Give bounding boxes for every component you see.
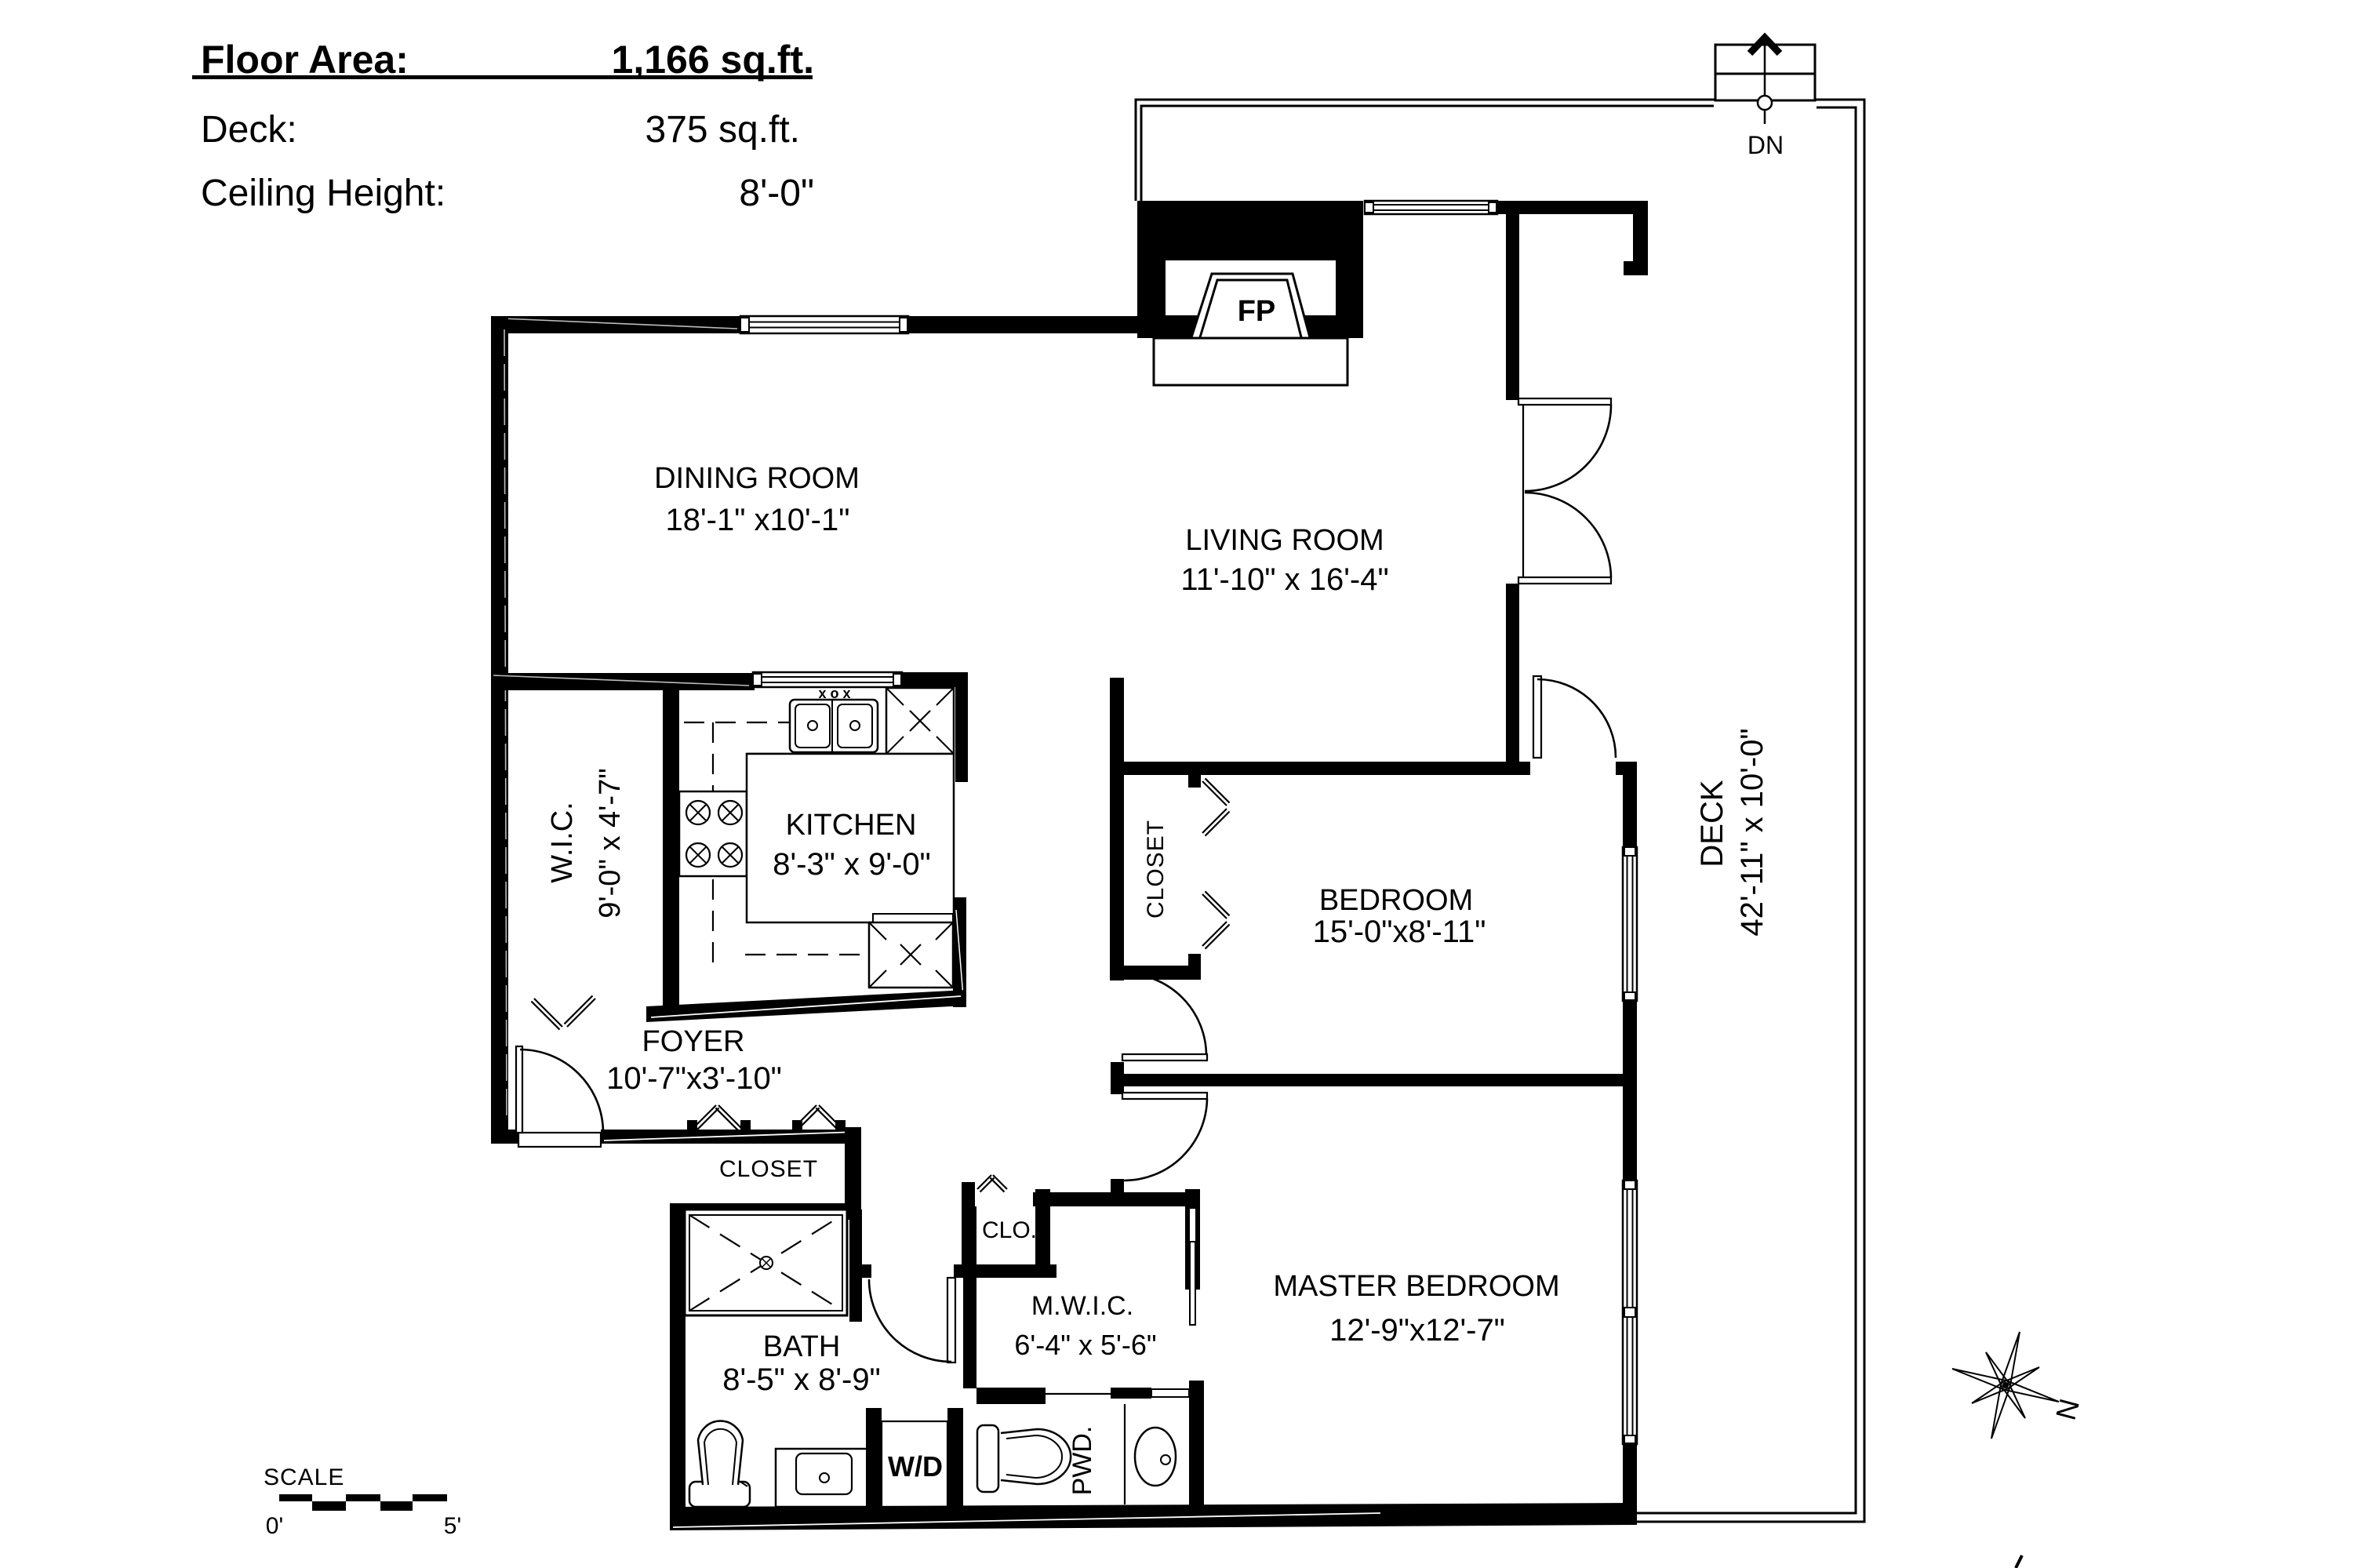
svg-text:9'-0" x 4'-7": 9'-0" x 4'-7" [594,768,627,918]
svg-text:SCALE: SCALE [264,1464,344,1490]
svg-text:W.I.C.: W.I.C. [546,802,579,882]
svg-text:CLOSET: CLOSET [1143,820,1169,919]
svg-text:CLO.: CLO. [982,1217,1037,1243]
svg-text:Floor Area:: Floor Area: [201,38,409,82]
svg-text:42'-11" x 10'-0": 42'-11" x 10'-0" [1735,728,1769,936]
svg-text:375 sq.ft.: 375 sq.ft. [646,109,800,151]
svg-text:DECK: DECK [1695,780,1729,867]
svg-text:18'-1" x10'-1": 18'-1" x10'-1" [666,503,850,537]
svg-text:BATH: BATH [763,1330,841,1363]
svg-text:12'-9"x12'-7": 12'-9"x12'-7" [1329,1313,1505,1348]
svg-text:15'-0"x8'-11": 15'-0"x8'-11" [1313,915,1486,949]
svg-text:5': 5' [444,1513,461,1539]
svg-text:0': 0' [266,1513,283,1539]
svg-text:CLOSET: CLOSET [719,1156,818,1182]
svg-text:KITCHEN: KITCHEN [786,809,917,842]
svg-text:LIVING ROOM: LIVING ROOM [1185,524,1384,557]
svg-text:8'-5" x 8'-9": 8'-5" x 8'-9" [722,1362,881,1397]
svg-text:W/D: W/D [888,1450,943,1483]
svg-text:6'-4" x 5'-6": 6'-4" x 5'-6" [1014,1329,1156,1361]
svg-text:FP: FP [1238,295,1276,328]
svg-text:DN: DN [1747,131,1784,159]
svg-text:M.W.I.C.: M.W.I.C. [1031,1291,1133,1321]
svg-text:MASTER BEDROOM: MASTER BEDROOM [1273,1270,1559,1303]
svg-text:Ceiling Height:: Ceiling Height: [201,173,446,214]
svg-text:1,166 sq.ft.: 1,166 sq.ft. [612,38,814,82]
svg-text:10'-7"x3'-10": 10'-7"x3'-10" [606,1061,782,1096]
svg-text:PWD.: PWD. [1067,1426,1097,1496]
svg-text:Deck:: Deck: [201,109,297,151]
svg-text:FOYER: FOYER [642,1025,745,1058]
svg-text:DINING ROOM: DINING ROOM [654,462,860,495]
svg-text:BEDROOM: BEDROOM [1319,884,1473,917]
svg-text:8'-0": 8'-0" [739,173,814,214]
svg-text:11'-10" x 16'-4": 11'-10" x 16'-4" [1180,562,1388,597]
svg-text:8'-3" x 9'-0": 8'-3" x 9'-0" [773,847,931,882]
